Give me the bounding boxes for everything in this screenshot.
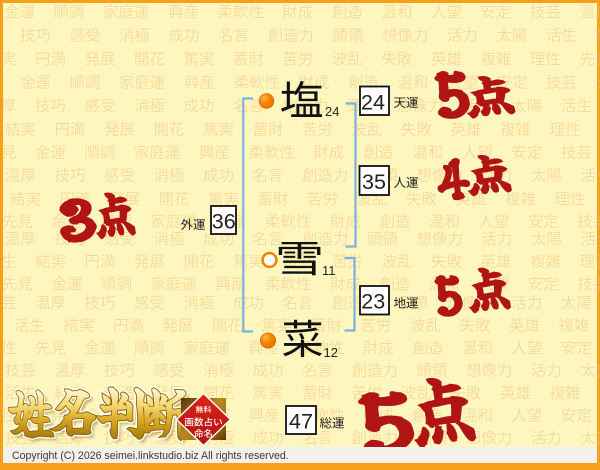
svg-text:12: 12 <box>324 345 338 360</box>
svg-text:23: 23 <box>361 290 385 314</box>
svg-text:11: 11 <box>322 263 336 278</box>
svg-text:36: 36 <box>212 210 236 234</box>
svg-text:35: 35 <box>362 170 386 194</box>
svg-text:24: 24 <box>325 104 339 119</box>
svg-text:Copyright (C) 2026 seimei.link: Copyright (C) 2026 seimei.linkstudio.biz… <box>12 450 289 462</box>
svg-text:24: 24 <box>361 91 385 115</box>
svg-text:47: 47 <box>289 410 313 434</box>
